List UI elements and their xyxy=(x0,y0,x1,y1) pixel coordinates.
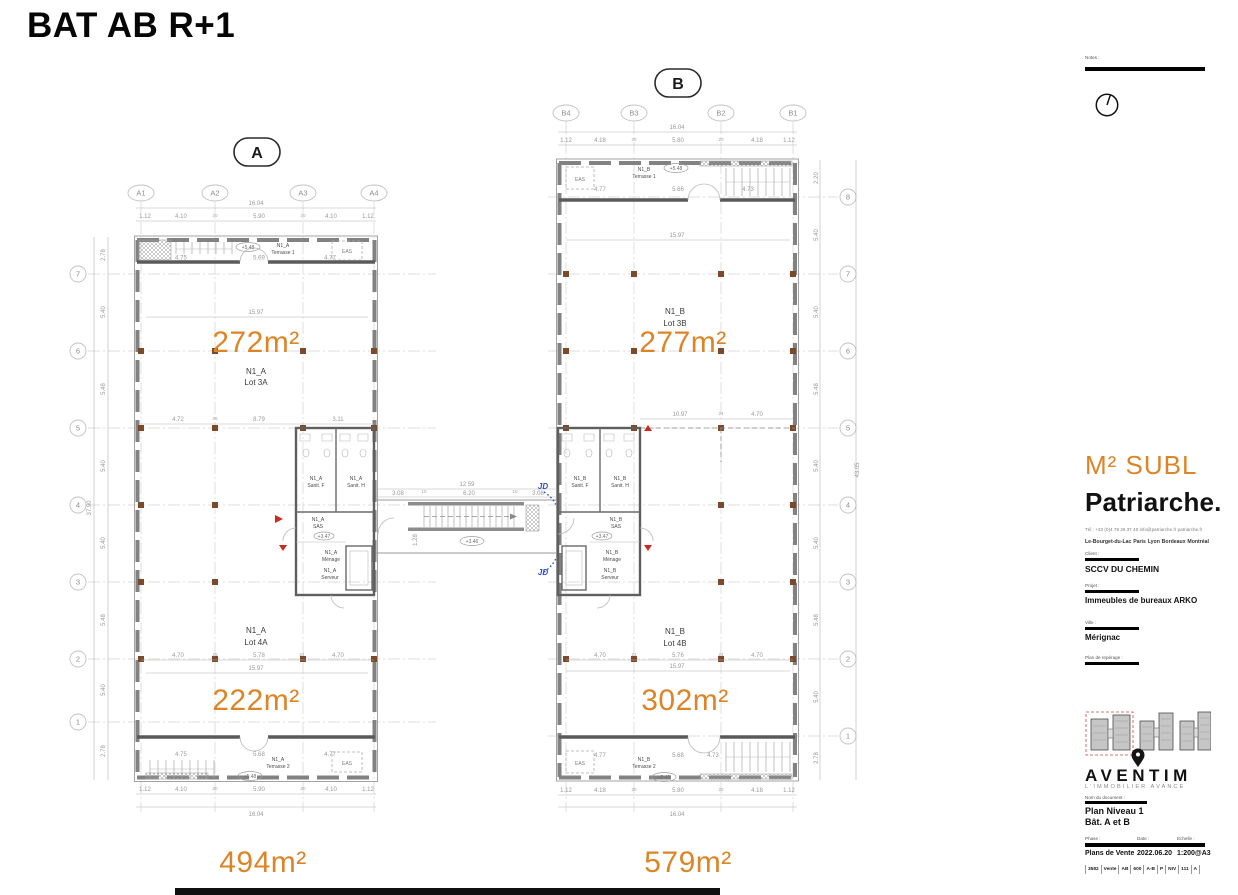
total-area-building-b: 579m² xyxy=(644,846,732,879)
grid-bubble: 8 xyxy=(846,193,850,202)
scale-value: 1:200@A3 xyxy=(1177,850,1211,857)
dim: 5.76 xyxy=(672,653,684,659)
codes-strip: 3582VenteAB600A-BPNIV111A xyxy=(1085,865,1200,874)
city-label: Ville : xyxy=(1085,620,1096,625)
dim: 5.48 xyxy=(101,614,107,626)
code-cell: P xyxy=(1158,865,1166,874)
dim: 5.90 xyxy=(253,214,265,220)
dim: 1.12 xyxy=(139,787,151,793)
dim: 37.90 xyxy=(87,500,93,516)
room-label: N1_A xyxy=(325,550,338,556)
dim: 24 xyxy=(718,411,724,416)
dim: 4.18 xyxy=(594,788,606,794)
lot-name: N1_A xyxy=(246,367,267,376)
grid-bubble: 3 xyxy=(76,578,80,587)
bridge-link: +3.46 12.59 3.08106.20103.08 1.28 JDJD xyxy=(376,482,558,577)
grid-bubble: 6 xyxy=(76,347,80,356)
dim: 5.40 xyxy=(101,537,107,549)
code-cell: 111 xyxy=(1179,865,1191,874)
dim: 15.97 xyxy=(248,666,264,672)
room-label: Sanit. F xyxy=(571,483,588,489)
building-b-marker: B xyxy=(655,69,701,97)
lot-name: N1_B xyxy=(665,307,685,316)
dim: 15.97 xyxy=(669,233,685,239)
grid-bubble: A4 xyxy=(369,189,378,198)
dim: 15.97 xyxy=(669,664,685,670)
doc-title-line2: Bât. A et B xyxy=(1085,817,1130,827)
dim: 5.40 xyxy=(101,306,107,318)
dim: 10 xyxy=(421,489,427,494)
code-cell: 3582 xyxy=(1085,865,1102,874)
dim: 5.69 xyxy=(253,256,265,262)
dim: 6.20 xyxy=(463,491,475,497)
dim: 20 xyxy=(300,786,306,791)
svg-text:A: A xyxy=(251,145,263,162)
level-marker: +3.47 xyxy=(318,534,331,540)
dim: 1.12 xyxy=(560,788,572,794)
dims-a: 16.04 1.124.10205.90204.101.12 1.124.102… xyxy=(87,201,376,818)
dim: 12.59 xyxy=(459,482,475,488)
location-pin-icon xyxy=(1132,749,1145,768)
drawing-sheet: BAT AB R+1 A1 A2 A3 A4 7 6 5 4 3 2 1 A 1… xyxy=(0,0,1238,895)
area-label-lot4b: 302m² xyxy=(641,684,729,717)
grid-bubble: B3 xyxy=(629,109,638,118)
building-b: EAS +5.48 N1_BTerrasse 1 4.775.664.73 EA… xyxy=(557,159,799,782)
dim: 4.10 xyxy=(175,787,187,793)
dim: 5.80 xyxy=(672,788,684,794)
dim: 20 xyxy=(718,137,724,142)
aventim-tagline: L'IMMOBILIER AVANCE xyxy=(1085,784,1185,790)
dim: 5.40 xyxy=(814,460,820,472)
dim: 3.08 xyxy=(392,491,404,497)
dim: 16.04 xyxy=(248,201,264,207)
dim: 3.11 xyxy=(332,417,344,423)
code-cell: NIV xyxy=(1166,865,1179,874)
dim: 4.10 xyxy=(175,214,187,220)
dim: 20 xyxy=(631,137,637,142)
city-name: Mérignac xyxy=(1085,633,1120,642)
dim: 4.77 xyxy=(594,753,606,759)
terrace-label: N1_B xyxy=(638,757,651,763)
date-label: Date : xyxy=(1137,836,1149,841)
room-label: N1_B xyxy=(606,550,619,556)
dim: 4.70 xyxy=(594,653,606,659)
dim: 1.12 xyxy=(362,787,374,793)
aventim-logo: AVENTIM xyxy=(1085,766,1192,786)
lot-name: Lot 4B xyxy=(663,639,686,648)
room-label: N1_B xyxy=(574,476,587,482)
red-marker xyxy=(644,545,652,551)
area-label-lot3b: 277m² xyxy=(639,326,727,359)
dim: 20 xyxy=(631,787,637,792)
room-label: Ménage xyxy=(603,557,621,563)
client-label: Client : xyxy=(1085,551,1099,556)
building-a-marker: A xyxy=(234,138,280,166)
city-item: Le-Bourget-du-Lac xyxy=(1085,539,1131,545)
grid-bubble: 3 xyxy=(846,578,850,587)
project-label: Projet : xyxy=(1085,583,1100,588)
notes-label: Notes : xyxy=(1085,55,1100,60)
dim: 24 xyxy=(299,652,305,657)
dim: 5.68 xyxy=(253,752,265,758)
dim: 5.40 xyxy=(101,684,107,696)
dim: 4.10 xyxy=(325,214,337,220)
dim: 4.73 xyxy=(707,753,719,759)
contact-line: Tél : +33 (0)4 79 26 37 40 info@patriarc… xyxy=(1085,527,1202,532)
grid-bubble: 4 xyxy=(76,501,80,510)
dim: 1.12 xyxy=(783,138,795,144)
room-label: Sanit. F xyxy=(307,483,324,489)
dim: 5.68 xyxy=(672,753,684,759)
room-label: SAS xyxy=(313,524,324,530)
grid-bubble: B4 xyxy=(561,109,570,118)
terrace-label: N1_B xyxy=(638,167,651,173)
room-label: Sanit. H xyxy=(347,483,365,489)
expansion-joint-label: JD xyxy=(538,568,548,577)
dim: 5.40 xyxy=(814,229,820,241)
level-marker: +3.46 xyxy=(466,539,479,545)
dim: 2.78 xyxy=(101,249,107,261)
room-label: Sanit. H xyxy=(611,483,629,489)
dim: 4.77 xyxy=(324,256,336,262)
eas-label: EAS xyxy=(575,761,586,767)
red-marker xyxy=(275,515,283,523)
dim: 4.72 xyxy=(172,417,184,423)
dim: 4.18 xyxy=(751,788,763,794)
dim: 1.28 xyxy=(413,534,419,546)
dim: 43.05 xyxy=(855,462,861,478)
level-marker: +5.48 xyxy=(244,774,257,780)
dim: 2.78 xyxy=(101,745,107,757)
dim: 16.04 xyxy=(248,812,264,818)
client-name: SCCV DU CHEMIN xyxy=(1085,564,1159,574)
dim: 5.40 xyxy=(814,306,820,318)
doc-title-line1: Plan Niveau 1 xyxy=(1085,806,1144,816)
dim: 5.48 xyxy=(101,383,107,395)
cities-list: Le-Bourget-du-LacParisLyonBordeauxMontré… xyxy=(1085,539,1209,545)
room-label: N1_B xyxy=(604,568,617,574)
project-name: Immeubles de bureaux ARKO xyxy=(1085,596,1197,605)
code-cell: Vente xyxy=(1102,865,1120,874)
dim: 26 xyxy=(212,416,218,421)
grid-bubble: A1 xyxy=(136,189,145,198)
dim: 15.97 xyxy=(248,310,264,316)
dim: 5.80 xyxy=(672,138,684,144)
room-label: N1_A xyxy=(312,517,325,523)
dim: 20 xyxy=(212,213,218,218)
room-label: N1_B xyxy=(610,517,623,523)
room-label: N1_A xyxy=(310,476,323,482)
dim: 20 xyxy=(300,213,306,218)
phase-label: Phase : xyxy=(1085,836,1101,841)
dim: 4.18 xyxy=(594,138,606,144)
lot-name: Lot 4A xyxy=(244,638,268,647)
room-label: N1_A xyxy=(324,568,337,574)
area-label-lot4a: 222m² xyxy=(212,684,300,717)
grid-bubble: 6 xyxy=(846,347,850,356)
svg-text:B: B xyxy=(672,76,684,93)
dim: 20 xyxy=(212,786,218,791)
dim: 4.73 xyxy=(742,187,754,193)
dim: 5.78 xyxy=(253,653,265,659)
dim: 5.40 xyxy=(814,691,820,703)
title-block: Notes : M² SUBL Patriarche. Tél : +33 (0… xyxy=(1085,55,1211,890)
grid-bubble: 5 xyxy=(76,424,80,433)
city-item: Bordeaux xyxy=(1162,539,1186,545)
site-minimap xyxy=(1085,710,1211,768)
date-value: 2022.06.20 xyxy=(1137,850,1172,857)
grid-bubble: 7 xyxy=(76,270,80,279)
grid-bubble: 2 xyxy=(76,655,80,664)
terrace-label: Terrasse 1 xyxy=(271,250,295,256)
dim: 10 xyxy=(512,489,518,494)
dim: 16.04 xyxy=(669,812,685,818)
room-label: Serveur xyxy=(321,575,339,581)
level-marker: +5.48 xyxy=(670,166,683,172)
footer-bar xyxy=(175,888,720,895)
city-item: Paris xyxy=(1133,539,1146,545)
dim: 4.70 xyxy=(332,653,344,659)
dim: 4.77 xyxy=(594,187,606,193)
dim: 1.12 xyxy=(783,788,795,794)
building-a: EAS +5.48 N1_ATerrasse 1 4.755.694.77 EA… xyxy=(135,236,395,782)
north-compass-icon xyxy=(1093,91,1121,119)
dim: 24 xyxy=(718,652,724,657)
phase-value: Plans de Vente xyxy=(1085,850,1134,857)
dim: 2.20 xyxy=(814,172,820,184)
terrace-label: N1_A xyxy=(272,757,285,763)
dim: 4.70 xyxy=(172,653,184,659)
lot-name: N1_B xyxy=(665,627,685,636)
dim: 1.12 xyxy=(139,214,151,220)
room-label: N1_B xyxy=(614,476,627,482)
dim: 5.40 xyxy=(101,460,107,472)
code-cell: A-B xyxy=(1144,865,1158,874)
red-marker xyxy=(279,545,287,551)
room-label: SAS xyxy=(611,524,622,530)
grid-bubble: 1 xyxy=(76,718,80,727)
doc-label: Nom du document : xyxy=(1085,795,1125,800)
level-marker: +3.47 xyxy=(596,534,609,540)
dim: 1.12 xyxy=(362,214,374,220)
dim: 5.48 xyxy=(814,383,820,395)
terrace-label: N1_A xyxy=(277,243,290,249)
grid-bubble: 2 xyxy=(846,655,850,664)
brand-m2subl: M² SUBL xyxy=(1085,450,1197,481)
terrace-label: Terrasse 1 xyxy=(632,174,656,180)
total-area-building-a: 494m² xyxy=(219,846,307,879)
dim: 2.78 xyxy=(814,752,820,764)
dim: 20 xyxy=(718,787,724,792)
room-label: N1_A xyxy=(350,476,363,482)
dim: 5.66 xyxy=(672,187,684,193)
dim: 4.75 xyxy=(175,256,187,262)
dim: 4.18 xyxy=(751,138,763,144)
dim: 3.08 xyxy=(532,491,544,497)
dim: 4.75 xyxy=(175,752,187,758)
dim: 4.10 xyxy=(325,787,337,793)
lot-name: Lot 3A xyxy=(244,378,268,387)
room-label: Serveur xyxy=(601,575,619,581)
grid-a: A1 A2 A3 A4 7 6 5 4 3 2 1 xyxy=(70,185,436,812)
dim: 1.12 xyxy=(560,138,572,144)
grid-bubble: A2 xyxy=(210,189,219,198)
terrace-label: Terrasse 2 xyxy=(266,764,290,770)
eas-label: EAS xyxy=(575,177,586,183)
terrace-label: Terrasse 2 xyxy=(632,764,656,770)
grid-bubble: 5 xyxy=(846,424,850,433)
dim: 4.70 xyxy=(751,653,763,659)
dim: 4.77 xyxy=(324,752,336,758)
dim: 5.48 xyxy=(814,614,820,626)
level-marker: +5.48 xyxy=(658,775,671,781)
dim: 26 xyxy=(212,652,218,657)
eas-label: EAS xyxy=(342,761,353,767)
grid-bubble: 1 xyxy=(846,732,850,741)
code-cell: A xyxy=(1192,865,1200,874)
dim: 5.90 xyxy=(253,787,265,793)
grid-bubble: B1 xyxy=(788,109,797,118)
city-item: Montréal xyxy=(1187,539,1209,545)
area-label-lot3a: 272m² xyxy=(212,326,300,359)
floor-plan-drawing: A1 A2 A3 A4 7 6 5 4 3 2 1 A 16.04 1.124.… xyxy=(0,0,1238,895)
grid-bubble: A3 xyxy=(298,189,307,198)
code-cell: AB xyxy=(1119,865,1131,874)
city-item: Lyon xyxy=(1148,539,1160,545)
dim: 16.04 xyxy=(669,125,685,131)
grid-bubble: B2 xyxy=(716,109,725,118)
dim: 8.79 xyxy=(253,417,265,423)
lot-name: N1_A xyxy=(246,626,267,635)
dim: 5.40 xyxy=(814,537,820,549)
dim: 4.70 xyxy=(751,412,763,418)
dim: 10.97 xyxy=(672,412,688,418)
code-cell: 600 xyxy=(1131,865,1144,874)
expansion-joint-label: JD xyxy=(538,482,548,491)
scale-label: Echelle : xyxy=(1177,836,1195,841)
grid-bubble: 4 xyxy=(846,501,850,510)
dim: 24 xyxy=(631,652,637,657)
level-marker: +5.48 xyxy=(242,245,255,251)
notes-rule xyxy=(1085,67,1205,71)
eas-label: EAS xyxy=(342,249,353,255)
brand-patriarche: Patriarche. xyxy=(1085,487,1222,518)
room-label: Ménage xyxy=(322,557,340,563)
locator-label: Plan de repérage : xyxy=(1085,655,1123,660)
grid-bubble: 7 xyxy=(846,270,850,279)
